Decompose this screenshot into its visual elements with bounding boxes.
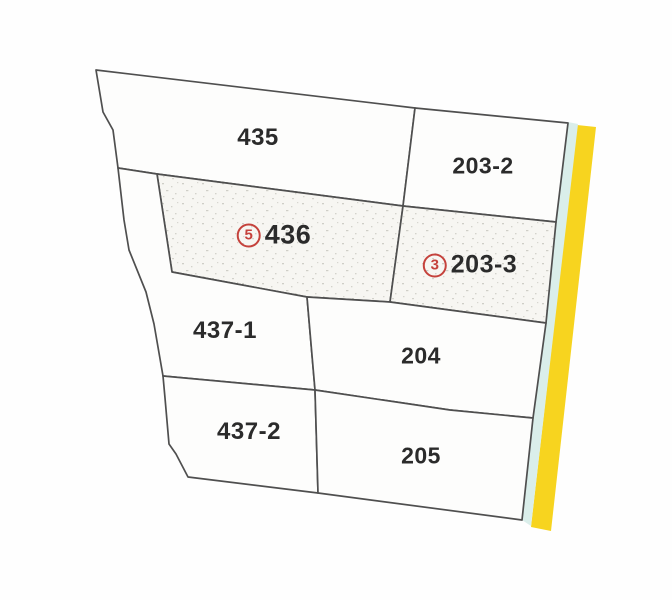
parcel-map-canvas bbox=[0, 0, 672, 600]
parcel-203-2-shape bbox=[403, 108, 568, 222]
parcel-437-2-shape bbox=[163, 376, 318, 493]
cadastral-map: 435203-254363203-3437-1204437-2205 bbox=[0, 0, 672, 600]
